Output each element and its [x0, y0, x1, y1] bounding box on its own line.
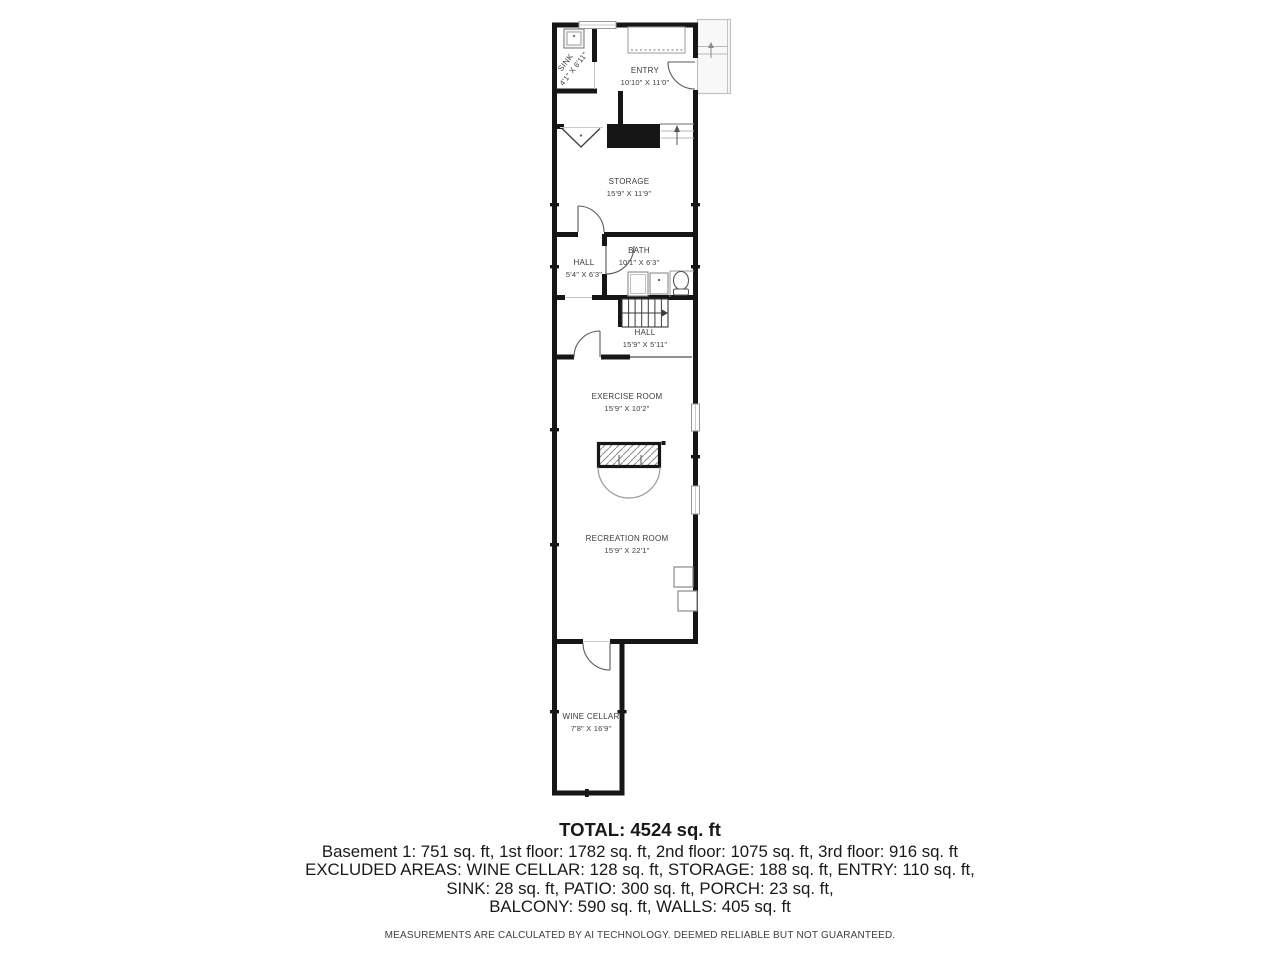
- svg-text:RECREATION ROOM: RECREATION ROOM: [586, 534, 669, 543]
- entry-door-arc: [668, 62, 695, 89]
- entry-closet: [628, 27, 685, 53]
- svg-text:ENTRY: ENTRY: [631, 66, 660, 75]
- excluded-areas-line3: BALCONY: 590 sq. ft, WALLS: 405 sq. ft: [0, 898, 1280, 916]
- disclaimer-text: MEASUREMENTS ARE CALCULATED BY AI TECHNO…: [0, 930, 1280, 941]
- hearth-arc: [598, 467, 660, 498]
- svg-text:15'9" X 11'9": 15'9" X 11'9": [607, 189, 652, 198]
- svg-text:15'9" X 5'11": 15'9" X 5'11": [623, 340, 668, 349]
- floorplan-page: SINK 4'1" X 6'11" ENTRY 10'10" X 11'0" S…: [0, 0, 1280, 960]
- svg-text:EXERCISE ROOM: EXERCISE ROOM: [592, 392, 663, 401]
- room-label-bath: BATH 10'1" X 6'3": [619, 246, 660, 267]
- excluded-areas-line1: EXCLUDED AREAS: WINE CELLAR: 128 sq. ft,…: [0, 861, 1280, 879]
- storage-door-arc: [578, 206, 604, 232]
- room-label-recreation: RECREATION ROOM 15'9" X 22'1": [586, 534, 669, 555]
- floor-plan: SINK 4'1" X 6'11" ENTRY 10'10" X 11'0" S…: [0, 0, 1280, 960]
- area-summary: TOTAL: 4524 sq. ft Basement 1: 751 sq. f…: [0, 819, 1280, 941]
- svg-text:5'4" X 6'3": 5'4" X 6'3": [566, 270, 602, 279]
- svg-text:15'9" X 10'2": 15'9" X 10'2": [605, 404, 650, 413]
- window-right-upper: [692, 404, 700, 431]
- step-up-arrow-icon: [674, 125, 680, 145]
- window-top: [579, 22, 616, 29]
- sink-fixture: [564, 29, 584, 48]
- cased-opening-symbol: [560, 128, 603, 148]
- vanity-sink-icon: [650, 273, 668, 294]
- fireplace: [598, 441, 666, 498]
- staircase: [622, 299, 668, 327]
- bath-fixtures: [628, 271, 694, 297]
- porch-steps: [698, 20, 731, 94]
- svg-text:15'9" X 22'1": 15'9" X 22'1": [605, 546, 650, 555]
- svg-text:STORAGE: STORAGE: [609, 177, 650, 186]
- hall-door-arc: [574, 331, 600, 357]
- room-label-wine-cellar: WINE CELLAR 7'8" X 16'9": [563, 712, 620, 733]
- svg-text:10'1" X 6'3": 10'1" X 6'3": [619, 258, 660, 267]
- svg-text:BATH: BATH: [628, 246, 650, 255]
- room-label-hall-lower: HALL 15'9" X 5'11": [623, 328, 668, 349]
- svg-text:7'8" X 16'9": 7'8" X 16'9": [571, 724, 612, 733]
- toilet-icon: [674, 272, 689, 296]
- room-label-storage: STORAGE 15'9" X 11'9": [607, 177, 652, 198]
- svg-text:HALL: HALL: [573, 258, 594, 267]
- room-label-exercise: EXERCISE ROOM 15'9" X 10'2": [592, 392, 663, 413]
- excluded-areas-line2: SINK: 28 sq. ft, PATIO: 300 sq. ft, PORC…: [0, 880, 1280, 898]
- wine-cellar-door-arc: [583, 643, 610, 670]
- total-area-text: TOTAL: 4524 sq. ft: [0, 819, 1280, 841]
- floor-areas-text: Basement 1: 751 sq. ft, 1st floor: 1782 …: [0, 843, 1280, 861]
- svg-text:WINE CELLAR: WINE CELLAR: [563, 712, 620, 721]
- svg-text:HALL: HALL: [634, 328, 655, 337]
- room-label-entry: ENTRY 10'10" X 11'0": [621, 66, 670, 87]
- room-label-hall-upper: HALL 5'4" X 6'3": [566, 258, 602, 279]
- svg-text:10'10" X 11'0": 10'10" X 11'0": [621, 78, 670, 87]
- chimney-mass: [607, 124, 660, 148]
- window-right-lower: [692, 486, 700, 514]
